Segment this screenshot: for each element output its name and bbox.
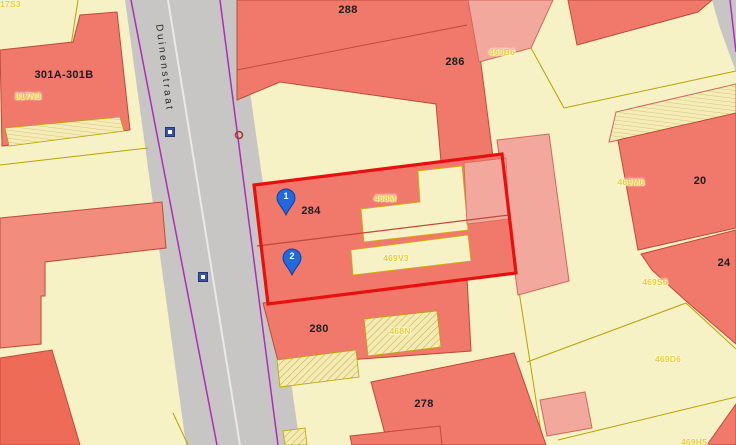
building-light-south[interactable] bbox=[540, 392, 592, 436]
marker-number: 2 bbox=[281, 251, 303, 261]
marker-number: 1 bbox=[275, 191, 297, 201]
map-marker-2[interactable]: 2 bbox=[281, 248, 303, 276]
road-sign-icon bbox=[198, 272, 208, 282]
hatched-strip-bottom[interactable] bbox=[283, 428, 307, 445]
map-layers bbox=[0, 0, 736, 445]
road-sign-icon bbox=[165, 127, 175, 137]
map-canvas[interactable]: Duinenstraat 301A-301B 288 286 284 280 2… bbox=[0, 0, 736, 445]
map-marker-1[interactable]: 1 bbox=[275, 188, 297, 216]
